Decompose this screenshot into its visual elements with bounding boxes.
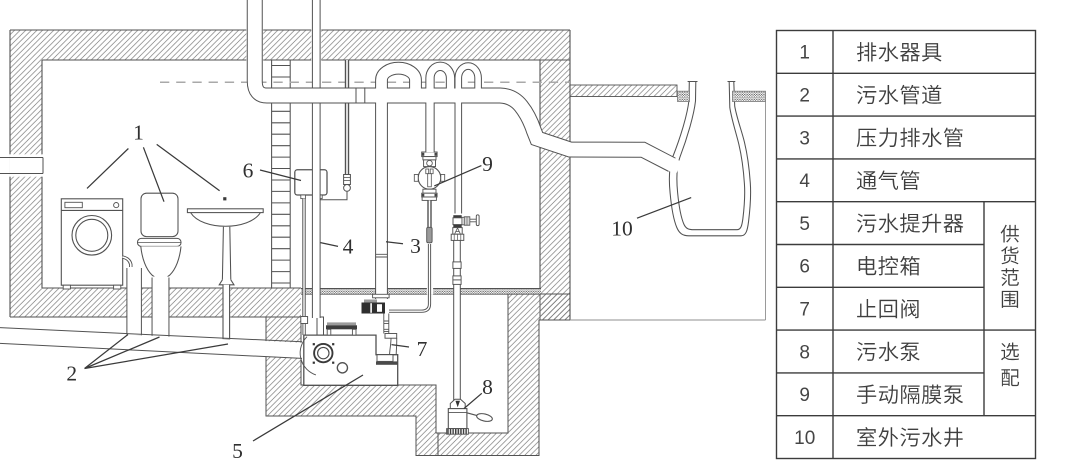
svg-text:9: 9 xyxy=(482,152,493,176)
svg-text:8: 8 xyxy=(482,375,493,399)
svg-text:3: 3 xyxy=(799,128,810,149)
svg-text:6: 6 xyxy=(243,159,254,183)
svg-text:4: 4 xyxy=(799,171,810,192)
svg-text:6: 6 xyxy=(799,257,810,278)
svg-text:8: 8 xyxy=(799,342,810,363)
svg-text:4: 4 xyxy=(343,235,354,259)
svg-text:2: 2 xyxy=(799,86,810,107)
svg-text:5: 5 xyxy=(232,439,243,463)
svg-text:5: 5 xyxy=(799,214,810,235)
svg-text:10: 10 xyxy=(611,217,633,241)
svg-text:2: 2 xyxy=(66,362,77,386)
svg-text:7: 7 xyxy=(417,337,428,361)
svg-text:10: 10 xyxy=(794,428,815,449)
svg-text:7: 7 xyxy=(799,300,810,321)
svg-text:3: 3 xyxy=(410,234,421,258)
svg-text:9: 9 xyxy=(799,385,810,406)
svg-text:1: 1 xyxy=(799,43,810,64)
svg-text:1: 1 xyxy=(133,121,144,145)
